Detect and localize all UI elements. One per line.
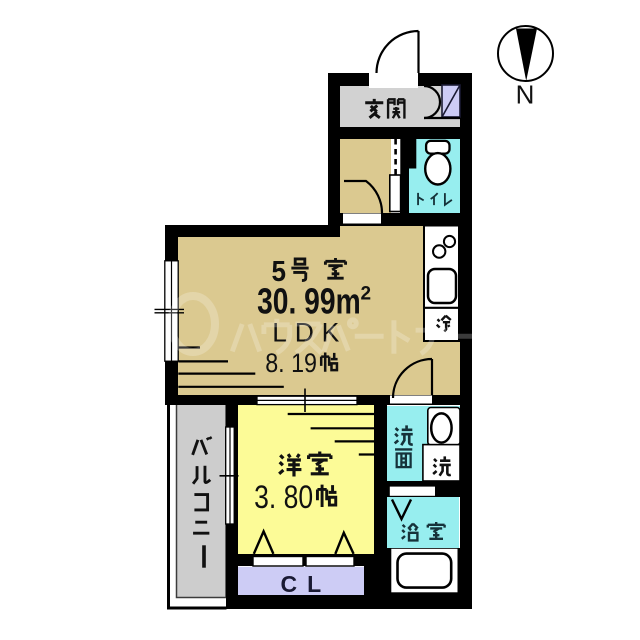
svg-text:2: 2	[361, 284, 372, 305]
svg-text:3. 80: 3. 80	[254, 479, 313, 515]
svg-text:30. 99m: 30. 99m	[257, 281, 361, 322]
svg-text:N: N	[516, 80, 535, 110]
svg-text:8. 19: 8. 19	[265, 348, 317, 378]
